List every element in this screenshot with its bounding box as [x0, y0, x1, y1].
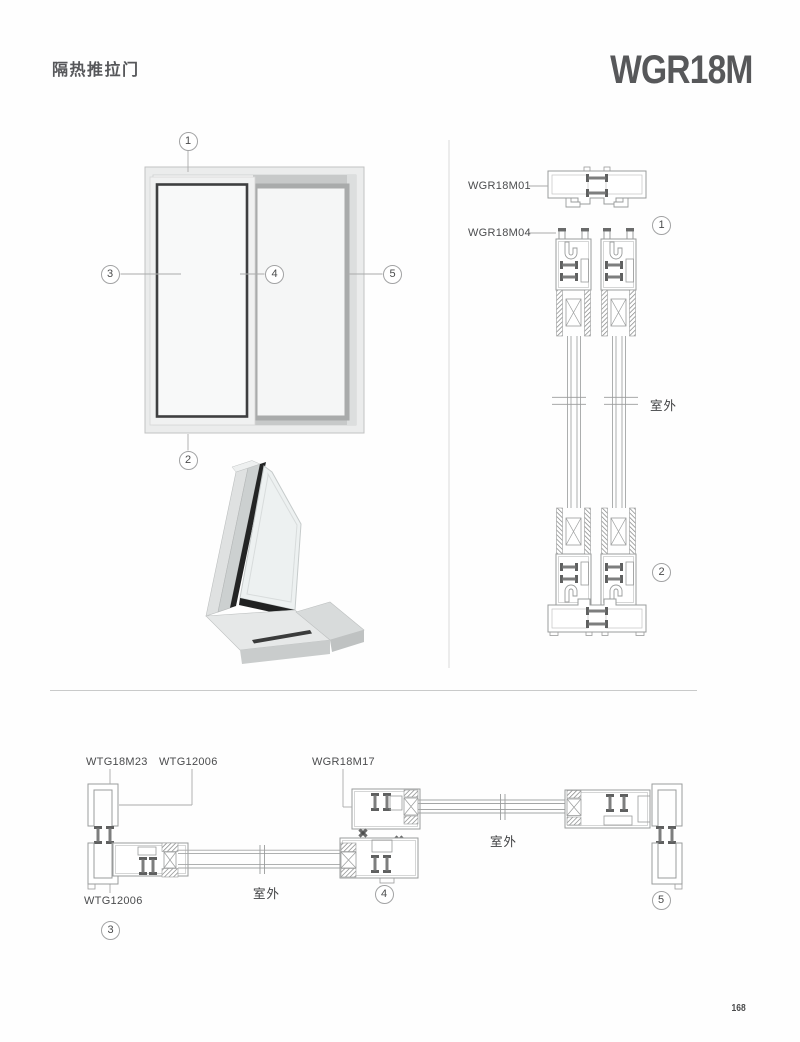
elevation-callout-3: 3: [101, 265, 120, 284]
profile-label-wgr18m01: WGR18M01: [468, 180, 531, 192]
profile-label-wtg12006-bottom: WTG12006: [84, 895, 143, 907]
catalog-page: 隔热推拉门 WGR18M: [0, 0, 800, 1042]
profile-label-wgr18m04: WGR18M04: [468, 227, 531, 239]
horizontal-section-drawing: [88, 769, 682, 893]
drawings-linework: [0, 0, 800, 1042]
elevation-drawing: [121, 151, 383, 451]
elevation-callout-4: 4: [265, 265, 284, 284]
profile-label-wgr18m17: WGR18M17: [312, 756, 375, 768]
profile-label-wtg12006-top: WTG12006: [159, 756, 218, 768]
elevation-callout-1: 1: [179, 132, 198, 151]
profile-label-wtg18m23: WTG18M23: [86, 756, 148, 768]
vertical-section-drawing: [529, 167, 646, 636]
vertical-section-callout-2: 2: [652, 563, 671, 582]
outdoor-label-vertical: 室外: [650, 395, 677, 414]
horizontal-section-callout-4: 4: [375, 885, 394, 904]
elevation-callout-2: 2: [179, 451, 198, 470]
vertical-section-callout-1: 1: [652, 216, 671, 235]
outdoor-label-horizontal-left: 室外: [253, 883, 280, 902]
elevation-callout-5: 5: [383, 265, 402, 284]
page-number: 168: [732, 1003, 746, 1014]
horizontal-section-callout-5: 5: [652, 891, 671, 910]
outdoor-label-horizontal-right: 室外: [490, 831, 517, 850]
isometric-profile-image: [206, 461, 364, 665]
horizontal-section-callout-3: 3: [101, 921, 120, 940]
